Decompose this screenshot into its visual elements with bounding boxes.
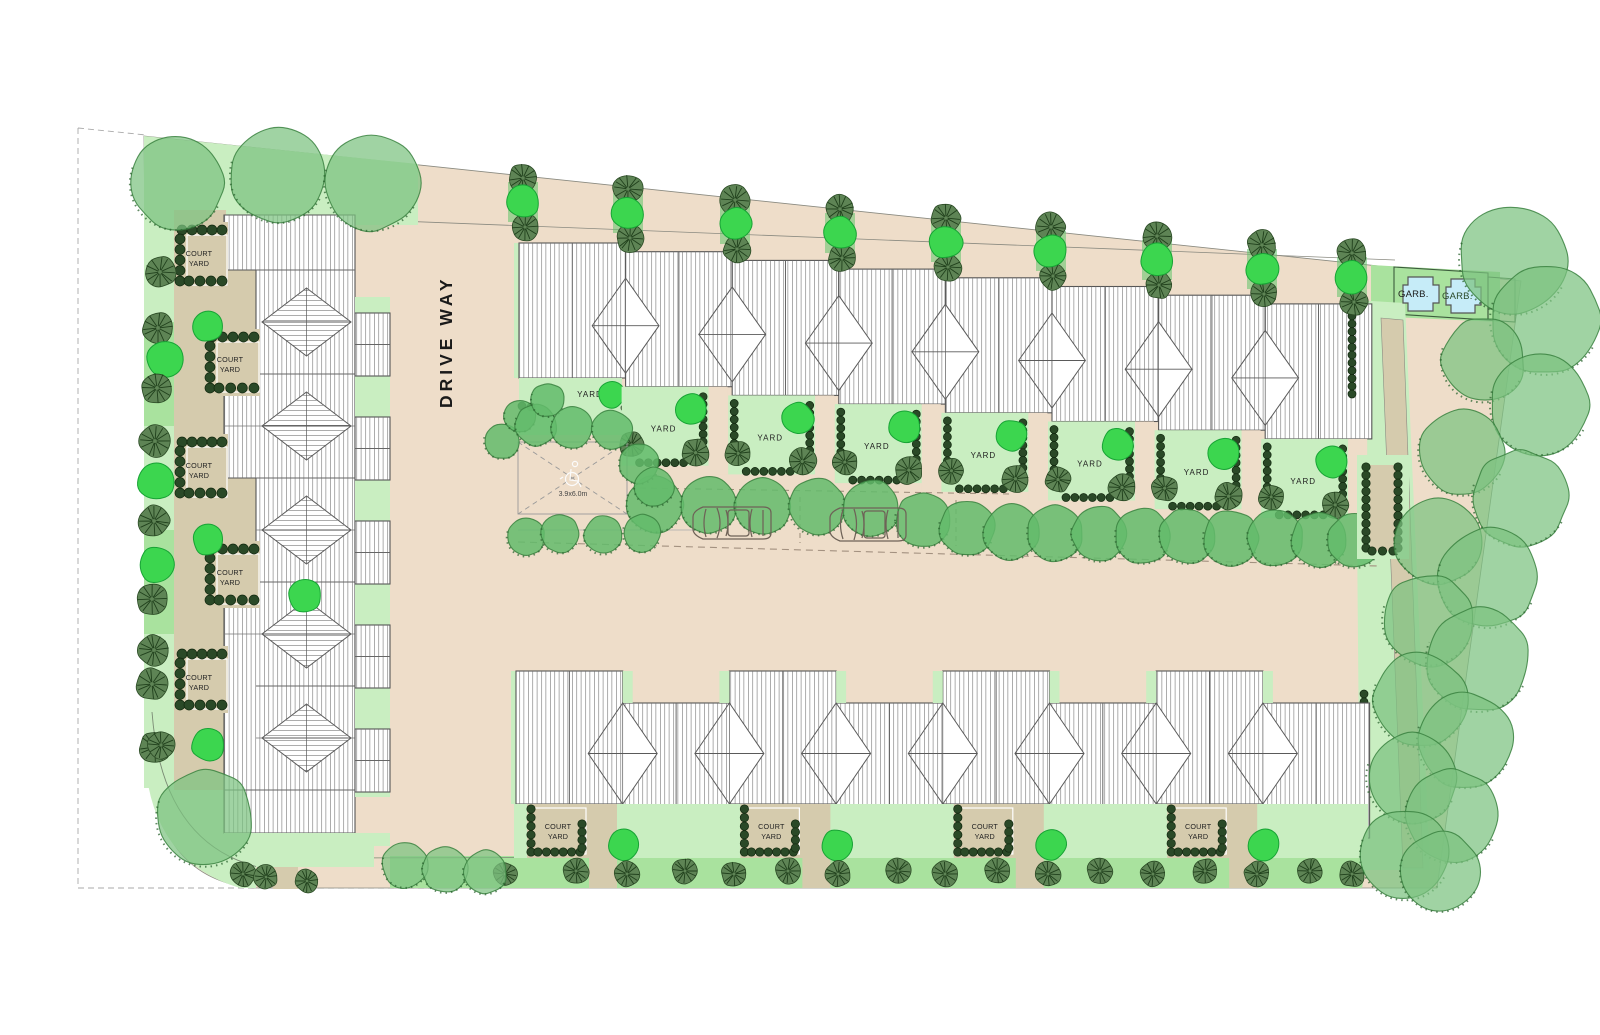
svg-text:YARD: YARD [1184, 468, 1210, 477]
svg-text:COURT: COURT [186, 249, 213, 258]
svg-text:COURT: COURT [217, 568, 244, 577]
svg-text:DRIVE WAY: DRIVE WAY [436, 275, 456, 408]
svg-text:COURT: COURT [186, 461, 213, 470]
svg-text:GARB.: GARB. [1398, 289, 1429, 300]
svg-text:COURT: COURT [1185, 822, 1212, 831]
svg-text:COURT: COURT [758, 822, 785, 831]
svg-text:COURT: COURT [217, 355, 244, 364]
svg-text:COURT: COURT [186, 673, 213, 682]
svg-text:COURT: COURT [972, 822, 999, 831]
svg-text:YARD: YARD [548, 832, 568, 841]
svg-text:COURT: COURT [545, 822, 572, 831]
svg-text:YARD: YARD [971, 451, 997, 460]
svg-text:YARD: YARD [864, 442, 890, 451]
svg-text:YARD: YARD [189, 683, 209, 692]
svg-text:YARD: YARD [1077, 460, 1103, 469]
svg-text:YARD: YARD [651, 425, 677, 434]
svg-text:YARD: YARD [220, 578, 240, 587]
svg-text:YARD: YARD [1188, 832, 1208, 841]
svg-text:YARD: YARD [975, 832, 995, 841]
svg-text:YARD: YARD [189, 259, 209, 268]
svg-text:YARD: YARD [220, 365, 240, 374]
svg-text:YARD: YARD [761, 832, 781, 841]
svg-text:GARB.: GARB. [1442, 291, 1473, 302]
svg-text:YARD: YARD [1290, 477, 1316, 486]
svg-text:3.9x6.0m: 3.9x6.0m [559, 491, 588, 498]
svg-text:YARD: YARD [189, 471, 209, 480]
svg-text:YARD: YARD [757, 433, 783, 442]
